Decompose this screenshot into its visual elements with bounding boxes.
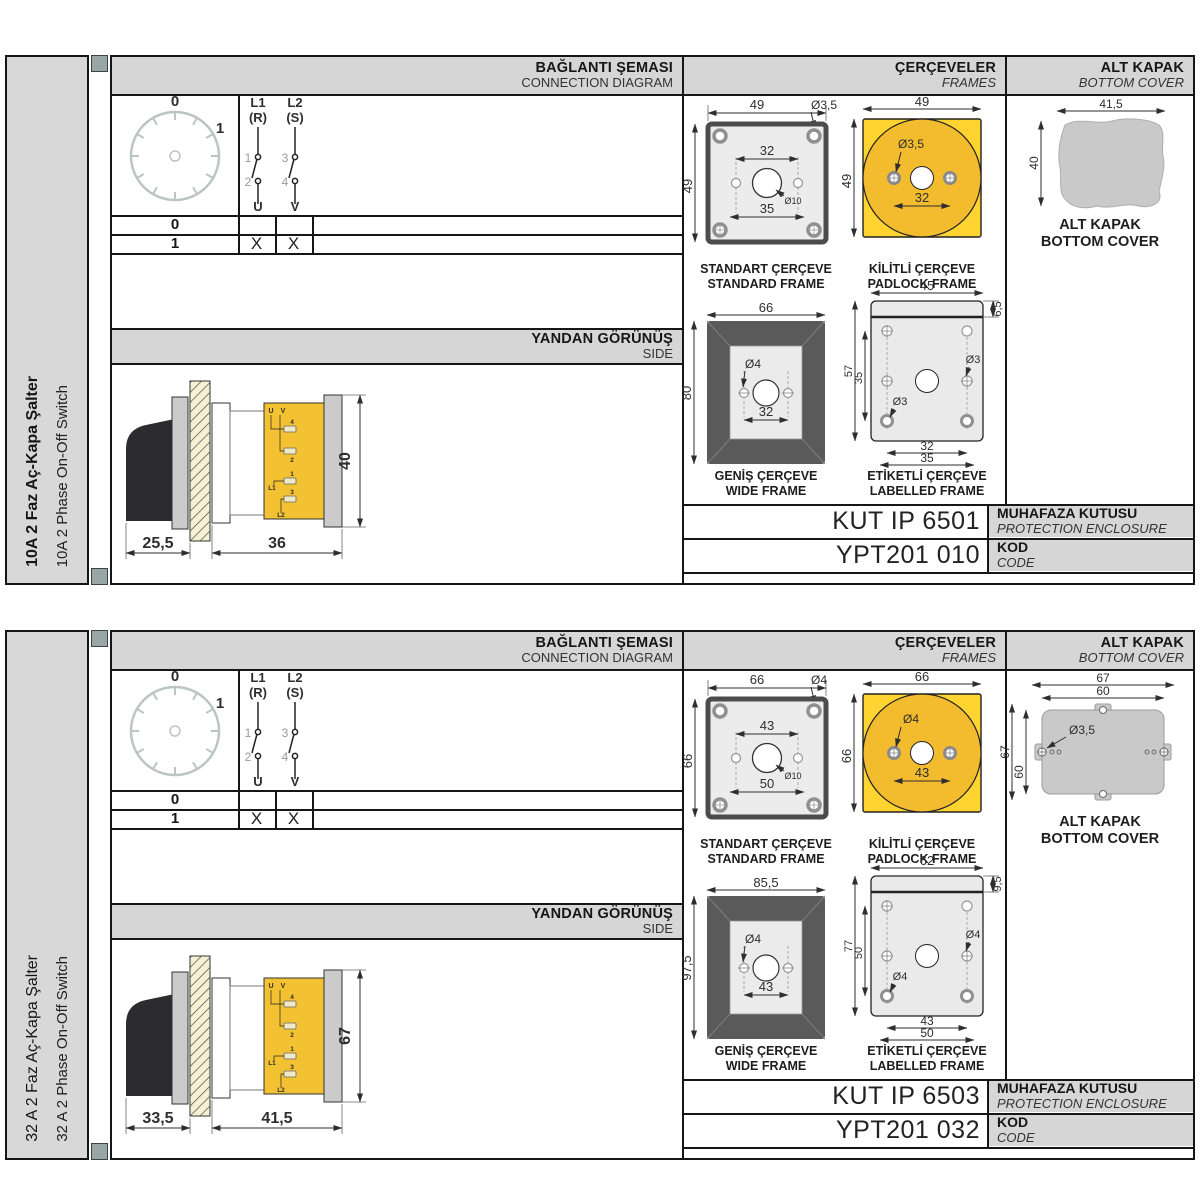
svg-text:50: 50: [920, 1026, 934, 1040]
contact-diagram: L1 (R) L2 (S) 1 2 3 4 U V: [238, 94, 438, 215]
contact-4: 4: [282, 175, 289, 189]
product-title-tr: 10A 2 Faz Aç-Kapa Şalter: [24, 376, 42, 567]
bottom-cover-drawing: 67 60 67 60 Ø3,5: [1002, 676, 1197, 808]
wide-frame-drawing: 85,5 97,5 Ø4 43: [687, 880, 845, 1042]
std-hole-dim: Ø3,5: [811, 98, 837, 112]
svg-text:Ø4: Ø4: [811, 673, 827, 687]
labelled-frame-drawing: 62 9,5 77 50 Ø4: [847, 858, 1007, 1044]
wide-hole-dim: Ø4: [745, 357, 761, 371]
cover-width-dim: 41,5: [1099, 97, 1123, 111]
contact-closed-v: X: [275, 809, 312, 828]
pad-width-dim: 49: [915, 94, 929, 109]
connection-diagram-header: BAĞLANTI ŞEMASI CONNECTION DIAGRAM: [112, 57, 682, 94]
table-row1-label: 1: [112, 809, 238, 828]
svg-text:2: 2: [290, 1032, 294, 1039]
terminal-1: 1: [290, 471, 294, 478]
svg-text:66: 66: [680, 754, 695, 768]
terminal-l2: L2: [277, 512, 285, 519]
wide-frame-drawing: 66 80 Ø4 32: [687, 305, 845, 467]
side-title-tr: YANDAN GÖRÜNÜŞ: [531, 331, 673, 348]
svg-text:(S): (S): [286, 685, 303, 700]
side-front-depth-dim: 25,5: [142, 535, 173, 552]
terminal-3: 3: [290, 489, 294, 496]
wide-width-dim: 66: [759, 300, 773, 315]
lab-width-dim: 45: [920, 278, 934, 293]
svg-text:L1: L1: [250, 670, 265, 685]
section-10a: 10A 2 Faz Aç-Kapa Şalter 10A 2 Phase On-…: [5, 55, 1195, 585]
svg-text:1: 1: [290, 1046, 294, 1053]
svg-text:V: V: [281, 983, 286, 990]
table-row0-label: 0: [112, 215, 238, 234]
svg-text:2: 2: [245, 750, 252, 764]
switch-position-dial: 0 1: [112, 669, 238, 790]
svg-text:L2: L2: [277, 1087, 285, 1094]
svg-text:0: 0: [171, 668, 179, 685]
bottom-cover-caption: ALT KAPAKBOTTOM COVER: [1007, 814, 1193, 849]
svg-text:85,5: 85,5: [753, 875, 778, 890]
product-title-en: 32 A 2 Phase On-Off Switch: [54, 956, 71, 1142]
side-body-depth-dim: 41,5: [261, 1110, 292, 1127]
contact-closed-u: X: [238, 234, 275, 253]
labelled-frame-caption: ETİKETLİ ÇERÇEVELABELLED FRAME: [847, 1044, 1007, 1074]
binding-strip: [89, 630, 110, 1160]
product-title-tr: 32 A 2 Faz Aç-Kapa Şalter: [24, 955, 42, 1142]
binding-square-bottom: [91, 1143, 108, 1160]
contact-diagram: L1 (R) L2 (S) 1 2 3 4 U V: [238, 669, 438, 790]
side-view-drawing: U V 4 2 1 3 L1 L2 40 25,5 3: [114, 369, 674, 579]
svg-text:Ø4: Ø4: [903, 712, 919, 726]
binding-square-top: [91, 630, 108, 647]
padlock-frame-drawing: 66 66 Ø4 43: [847, 672, 997, 834]
table-row0-label: 0: [112, 790, 238, 809]
standard-frame-caption: STANDART ÇERÇEVESTANDARD FRAME: [687, 262, 845, 292]
svg-text:U: U: [253, 774, 262, 789]
contact-2: 2: [245, 175, 252, 189]
pole2-label: L2: [287, 95, 302, 110]
std-pitch-dim: 32: [760, 143, 774, 158]
lab-hole1-dim: Ø3: [966, 354, 981, 366]
enclosure-label: MUHAFAZA KUTUSUPROTECTION ENCLOSURE: [989, 1081, 1193, 1112]
cover-outer-width-dim: 67: [1096, 671, 1110, 685]
product-title-bar: 32 A 2 Faz Aç-Kapa Şalter 32 A 2 Phase O…: [5, 630, 89, 1160]
cover-hole-dim: Ø3,5: [1069, 723, 1095, 737]
padlock-frame-drawing: 49 49 Ø3,5 32: [847, 97, 997, 259]
cover-outer-height-dim: 67: [998, 745, 1012, 759]
svg-text:43: 43: [915, 765, 929, 780]
terminal-2: 2: [290, 457, 294, 464]
svg-text:(R): (R): [249, 685, 267, 700]
bottom-cover-drawing: 41,5 40: [1027, 101, 1197, 213]
switch-position-dial: 0 1: [112, 94, 238, 215]
order-code: YPT201 010: [690, 540, 980, 570]
std-center-hole-dim: Ø10: [784, 196, 801, 206]
enclosure-code: KUT IP 6501: [690, 506, 980, 536]
side-body-depth-dim: 36: [268, 535, 286, 552]
pole1-label: L1: [250, 95, 265, 110]
std-height-dim: 49: [680, 179, 695, 193]
svg-text:1: 1: [216, 695, 224, 712]
terminal-v: V: [281, 408, 286, 415]
connection-title-en: CONNECTION DIAGRAM: [521, 76, 673, 91]
connection-title-tr: BAĞLANTI ŞEMASI: [535, 60, 673, 77]
frames-title-tr: ÇERÇEVELER: [895, 60, 996, 77]
output-u: U: [253, 199, 262, 214]
labelled-frame-caption: ETİKETLİ ÇERÇEVELABELLED FRAME: [847, 469, 1007, 499]
binding-strip: [89, 55, 110, 585]
std-pitch2-dim: 35: [760, 201, 774, 216]
contact-closed-u: X: [238, 809, 275, 828]
enclosure-label: MUHAFAZA KUTUSUPROTECTION ENCLOSURE: [989, 506, 1193, 537]
terminal-4: 4: [290, 419, 294, 426]
svg-text:3: 3: [282, 726, 289, 740]
svg-text:Ø10: Ø10: [784, 771, 801, 781]
svg-text:L2: L2: [287, 670, 302, 685]
svg-text:4: 4: [282, 750, 289, 764]
svg-text:66: 66: [750, 672, 764, 687]
contact-closed-v: X: [275, 234, 312, 253]
section-32a: 32 A 2 Faz Aç-Kapa Şalter 32 A 2 Phase O…: [5, 630, 1195, 1160]
standard-frame-drawing: 49 Ø3,5 49 32 Ø10 35: [687, 97, 845, 259]
svg-text:9,5: 9,5: [992, 876, 1004, 891]
svg-text:4: 4: [290, 994, 294, 1001]
lab-hole2-dim: Ø3: [893, 396, 908, 408]
standard-frame-caption: STANDART ÇERÇEVESTANDARD FRAME: [687, 837, 845, 867]
frames-header: ÇERÇEVELER FRAMES: [684, 632, 1005, 669]
binding-square-top: [91, 55, 108, 72]
datasheet-panel: BAĞLANTI ŞEMASI CONNECTION DIAGRAM ÇERÇE…: [110, 630, 1195, 1160]
svg-text:3: 3: [290, 1064, 294, 1071]
svg-text:L1: L1: [268, 1060, 276, 1067]
side-view-drawing: U V 4 2 1 3 L1 L2 67 33,5 41,5: [114, 944, 674, 1154]
table-row1-label: 1: [112, 234, 238, 253]
dial-position-1: 1: [216, 120, 224, 137]
cover-title-en: BOTTOM COVER: [1079, 76, 1184, 91]
wide-pitch-dim: 32: [759, 404, 773, 419]
cover-inner-height-dim: 60: [1012, 765, 1026, 779]
svg-text:U: U: [268, 983, 273, 990]
order-code-label: KODCODE: [989, 540, 1193, 571]
svg-text:43: 43: [760, 718, 774, 733]
side-view-header: YANDAN GÖRÜNÜŞ SIDE: [112, 328, 682, 365]
side-view-header: YANDAN GÖRÜNÜŞ SIDE: [112, 903, 682, 940]
pole2-phase: (S): [286, 110, 303, 125]
terminal-u: U: [268, 408, 273, 415]
bottom-cover-header: ALT KAPAK BOTTOM COVER: [1007, 57, 1193, 94]
svg-text:62: 62: [920, 853, 934, 868]
svg-text:Ø4: Ø4: [966, 929, 981, 941]
pad-pitch-dim: 32: [915, 190, 929, 205]
wide-height-dim: 80: [679, 386, 694, 400]
datasheet-panel: BAĞLANTI ŞEMASI CONNECTION DIAGRAM ÇERÇE…: [110, 55, 1195, 585]
order-code-label: KODCODE: [989, 1115, 1193, 1146]
enclosure-code: KUT IP 6503: [690, 1081, 980, 1111]
side-height-dim: 40: [337, 452, 354, 470]
labelled-frame-drawing: 45 6,5 57 35 Ø3: [847, 283, 1007, 469]
side-height-dim: 67: [337, 1027, 354, 1045]
svg-text:66: 66: [915, 669, 929, 684]
frames-header: ÇERÇEVELER FRAMES: [684, 57, 1005, 94]
svg-text:V: V: [291, 774, 300, 789]
svg-text:66: 66: [839, 749, 854, 763]
connection-diagram-header: BAĞLANTI ŞEMASI CONNECTION DIAGRAM: [112, 632, 682, 669]
side-title-en: SIDE: [643, 347, 673, 362]
cover-height-dim: 40: [1027, 156, 1041, 170]
svg-text:1: 1: [245, 726, 252, 740]
wide-frame-caption: GENİŞ ÇERÇEVEWIDE FRAME: [687, 469, 845, 499]
cover-inner-width-dim: 60: [1096, 684, 1110, 698]
output-v: V: [291, 199, 300, 214]
svg-text:Ø4: Ø4: [745, 932, 761, 946]
dial-position-0: 0: [171, 93, 179, 110]
std-width-dim: 49: [750, 97, 764, 112]
product-title-en: 10A 2 Phase On-Off Switch: [54, 385, 71, 567]
side-front-depth-dim: 33,5: [142, 1110, 173, 1127]
svg-text:43: 43: [759, 979, 773, 994]
contact-3: 3: [282, 151, 289, 165]
svg-text:Ø4: Ø4: [893, 971, 908, 983]
cover-title-tr: ALT KAPAK: [1101, 60, 1184, 77]
svg-text:50: 50: [853, 947, 865, 959]
lab-inner-height-dim: 35: [853, 372, 865, 384]
binding-square-bottom: [91, 568, 108, 585]
pad-hole-dim: Ø3,5: [898, 137, 924, 151]
terminal-l1: L1: [268, 485, 276, 492]
frames-title-en: FRAMES: [942, 76, 996, 91]
wide-frame-caption: GENİŞ ÇERÇEVEWIDE FRAME: [687, 1044, 845, 1074]
standard-frame-drawing: 66 Ø4 66 43 Ø10 50: [687, 672, 845, 834]
contact-1: 1: [245, 151, 252, 165]
pad-height-dim: 49: [839, 174, 854, 188]
order-code: YPT201 032: [690, 1115, 980, 1145]
svg-text:50: 50: [760, 776, 774, 791]
lab-pitch2-dim: 35: [920, 451, 934, 465]
bottom-cover-caption: ALT KAPAKBOTTOM COVER: [1007, 217, 1193, 252]
svg-text:97,5: 97,5: [679, 955, 694, 980]
lab-strip-dim: 6,5: [992, 301, 1004, 316]
pole1-phase: (R): [249, 110, 267, 125]
product-title-bar: 10A 2 Faz Aç-Kapa Şalter 10A 2 Phase On-…: [5, 55, 89, 585]
bottom-cover-header: ALT KAPAK BOTTOM COVER: [1007, 632, 1193, 669]
